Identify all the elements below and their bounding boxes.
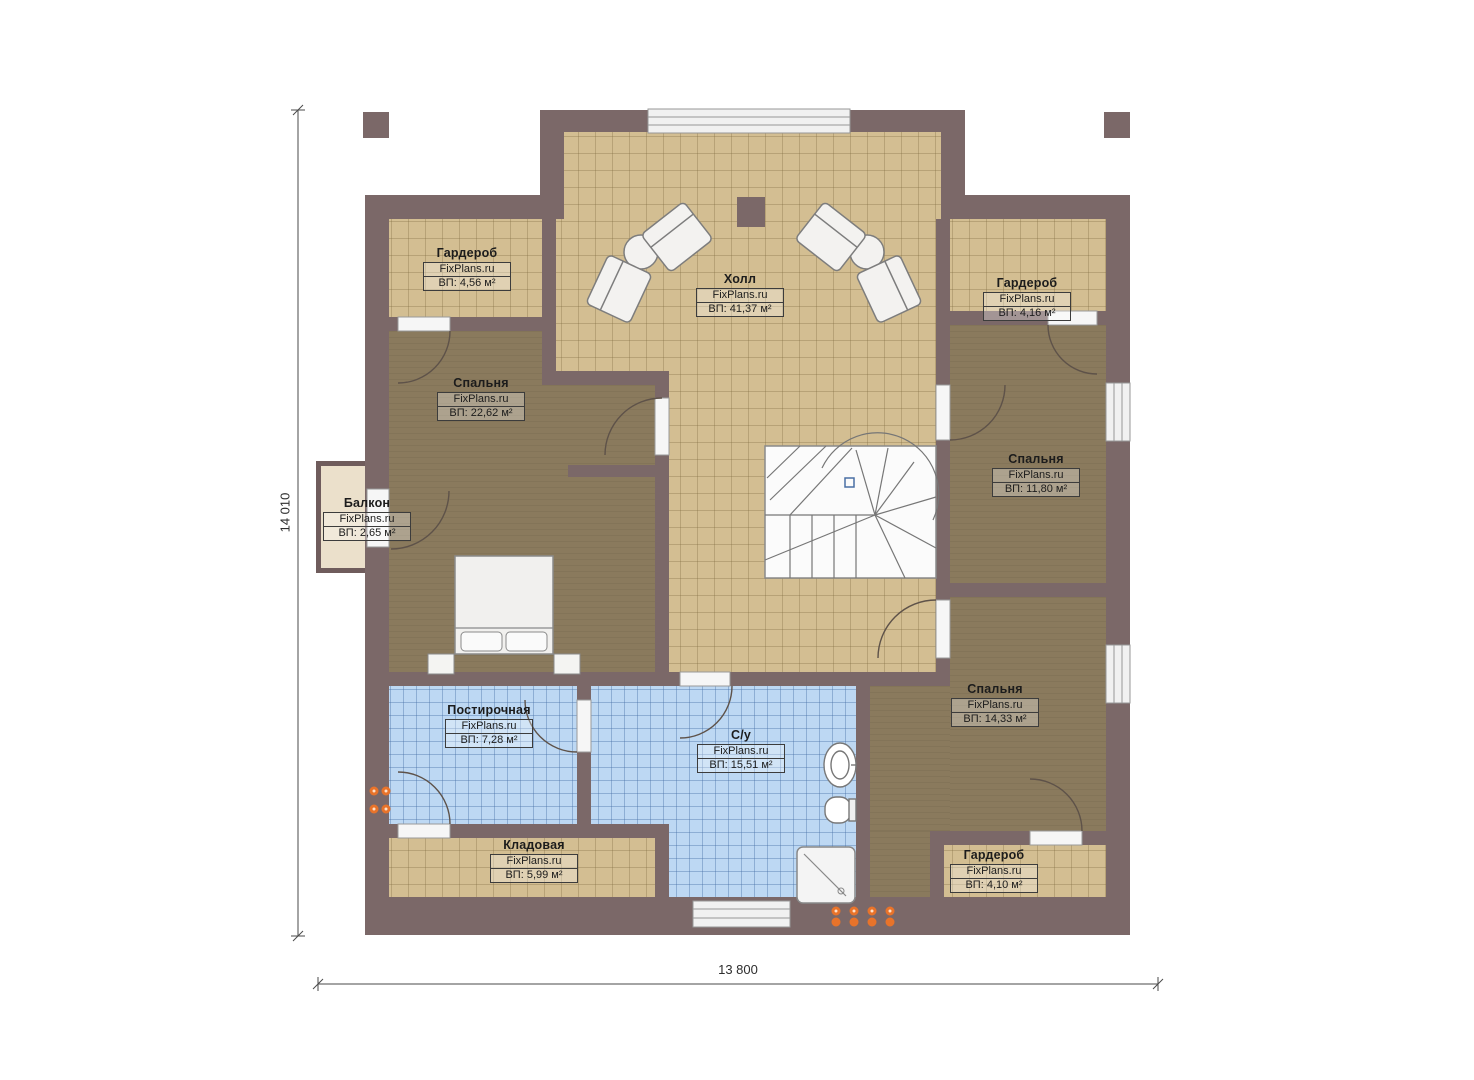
watermark: FixPlans.ru [697, 289, 783, 303]
floor-plan: Холл FixPlans.ru ВП: 41,37 м² Гардероб F… [0, 0, 1474, 1080]
room-name: Спальня [992, 452, 1080, 466]
watermark: FixPlans.ru [424, 263, 510, 277]
room-name: Гардероб [983, 276, 1071, 290]
room-label-wardrobe-top-left: Гардероб FixPlans.ru ВП: 4,56 м² [423, 246, 511, 291]
room-area: ВП: 14,33 м² [952, 713, 1038, 726]
floor-bedroom-bottom-right [870, 831, 930, 897]
room-name: Балкон [323, 496, 411, 510]
watermark: FixPlans.ru [993, 469, 1079, 483]
watermark: FixPlans.ru [446, 720, 532, 734]
pillar-top-right [1104, 112, 1130, 138]
watermark: FixPlans.ru [698, 745, 784, 759]
room-label-laundry: Постирочная FixPlans.ru ВП: 7,28 м² [445, 703, 533, 748]
room-label-balcony: Балкон FixPlans.ru ВП: 2,65 м² [323, 496, 411, 541]
room-area: ВП: 41,37 м² [697, 303, 783, 316]
dimension-width: 13 800 [698, 962, 778, 977]
room-name: С/у [697, 728, 785, 742]
column-hall [737, 197, 765, 227]
room-area: ВП: 4,10 м² [951, 879, 1037, 892]
pillar-top-left [363, 112, 389, 138]
room-name: Спальня [951, 682, 1039, 696]
room-name: Холл [696, 272, 784, 286]
room-area: ВП: 11,80 м² [993, 483, 1079, 496]
room-area: ВП: 5,99 м² [491, 869, 577, 882]
room-label-storage: Кладовая FixPlans.ru ВП: 5,99 м² [490, 838, 578, 883]
room-label-hall: Холл FixPlans.ru ВП: 41,37 м² [696, 272, 784, 317]
room-label-bedroom-bottom-right: Спальня FixPlans.ru ВП: 14,33 м² [951, 682, 1039, 727]
floor-hall [669, 371, 936, 672]
watermark: FixPlans.ru [984, 293, 1070, 307]
watermark: FixPlans.ru [491, 855, 577, 869]
room-label-bedroom-left: Спальня FixPlans.ru ВП: 22,62 м² [437, 376, 525, 421]
room-name: Спальня [437, 376, 525, 390]
room-label-bathroom: С/у FixPlans.ru ВП: 15,51 м² [697, 728, 785, 773]
watermark: FixPlans.ru [438, 393, 524, 407]
room-label-bedroom-right: Спальня FixPlans.ru ВП: 11,80 м² [992, 452, 1080, 497]
room-area: ВП: 22,62 м² [438, 407, 524, 420]
floor-bedroom-left [389, 385, 655, 672]
watermark: FixPlans.ru [324, 513, 410, 527]
room-area: ВП: 2,65 м² [324, 527, 410, 540]
room-area: ВП: 4,16 м² [984, 307, 1070, 320]
floor-bedroom-bottom-right [870, 686, 950, 831]
room-area: ВП: 7,28 м² [446, 734, 532, 747]
watermark: FixPlans.ru [952, 699, 1038, 713]
room-label-wardrobe-top-right: Гардероб FixPlans.ru ВП: 4,16 м² [983, 276, 1071, 321]
wall-stub-bedroom-left [568, 465, 669, 477]
room-area: ВП: 4,56 м² [424, 277, 510, 290]
room-name: Гардероб [423, 246, 511, 260]
room-name: Постирочная [445, 703, 533, 717]
room-area: ВП: 15,51 м² [698, 759, 784, 772]
dimension-height: 14 010 [278, 473, 293, 553]
room-label-wardrobe-bottom-right: Гардероб FixPlans.ru ВП: 4,10 м² [950, 848, 1038, 893]
room-name: Гардероб [950, 848, 1038, 862]
watermark: FixPlans.ru [951, 865, 1037, 879]
room-name: Кладовая [490, 838, 578, 852]
floor-bathroom [669, 824, 856, 897]
